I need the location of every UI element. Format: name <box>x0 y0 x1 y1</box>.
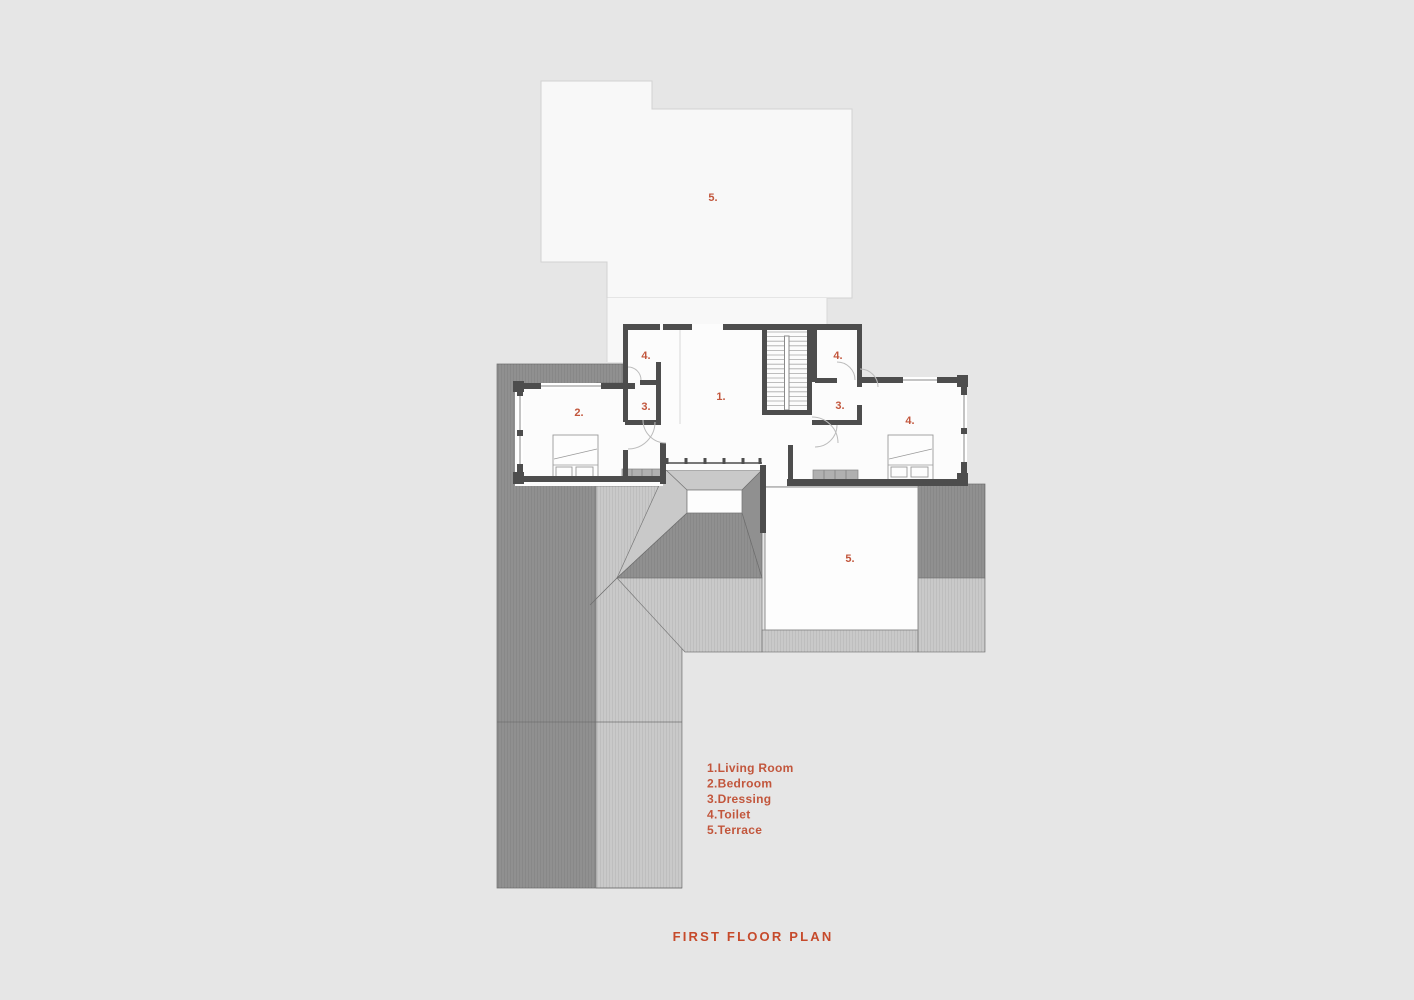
window <box>517 436 523 464</box>
legend-item: 4.Toilet <box>707 808 751 822</box>
room-label-toilet-right: 4. <box>833 350 842 362</box>
window <box>903 378 937 383</box>
bed-icon-left <box>553 435 598 480</box>
room-label-dressing-left: 3. <box>641 401 650 413</box>
room-label-terrace-top: 5. <box>708 192 717 204</box>
room-label-terrace-bottom: 5. <box>845 553 854 565</box>
room-label-living: 1. <box>716 391 725 403</box>
bottom-terrace <box>765 487 918 630</box>
skylight <box>687 490 742 513</box>
stair-stringer <box>785 336 790 410</box>
room-label-bedroom-left: 2. <box>574 407 583 419</box>
legend: 1.Living Room 2.Bedroom 3.Dressing 4.Toi… <box>707 761 794 837</box>
room-label-dressing-right: 3. <box>835 400 844 412</box>
room-label-toilet-left: 4. <box>641 350 650 362</box>
top-terrace <box>541 81 852 362</box>
room-label-bedroom-right: 4. <box>905 415 914 427</box>
legend-item: 5.Terrace <box>707 823 762 837</box>
legend-item: 1.Living Room <box>707 761 794 775</box>
bed-icon-right <box>888 435 933 480</box>
window <box>541 384 601 389</box>
window <box>517 396 523 430</box>
floor-plan-svg: 5. 4. 3. 2. 1. 4. 3. 4. 5. 1.Living Room… <box>0 0 1414 1000</box>
window <box>961 395 967 428</box>
legend-item: 2.Bedroom <box>707 777 772 791</box>
floor-plan-sheet: 5. 4. 3. 2. 1. 4. 3. 4. 5. 1.Living Room… <box>0 0 1414 1000</box>
legend-item: 3.Dressing <box>707 792 771 806</box>
window <box>961 434 967 462</box>
plan-title: FIRST FLOOR PLAN <box>673 929 834 944</box>
